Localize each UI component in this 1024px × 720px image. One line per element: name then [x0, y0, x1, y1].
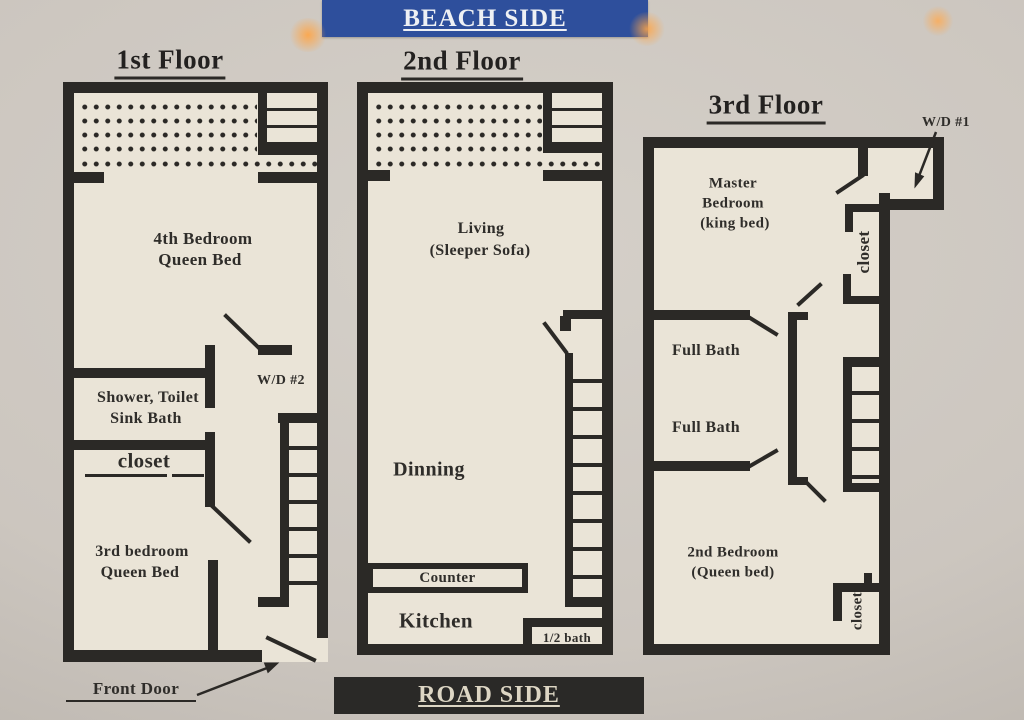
label-full-bath-upper: Full Bath — [672, 342, 740, 360]
wall — [843, 274, 851, 304]
wall — [357, 170, 390, 181]
wall — [63, 650, 262, 662]
wall — [643, 137, 944, 148]
label-half-bath: 1/2 bath — [543, 630, 591, 646]
wall — [560, 316, 571, 331]
beach-side-label: BEACH SIDE — [403, 5, 567, 33]
beach-side-banner: BEACH SIDE — [322, 0, 648, 37]
label-bath-line1: Shower, Toilet — [97, 389, 199, 407]
label-bedroom2-line2: (Queen bed) — [691, 565, 774, 582]
road-side-banner: ROAD SIDE — [334, 677, 644, 714]
deck-dots — [370, 153, 602, 168]
deck-dots — [76, 96, 257, 153]
wall — [788, 477, 808, 485]
label-master-line2: Bedroom — [702, 196, 764, 213]
floor-1-title: 1st Floor — [114, 45, 225, 80]
wall — [63, 368, 214, 378]
front-door-underline — [66, 700, 196, 702]
wall — [280, 423, 289, 605]
floor-plan-photo: BEACH SIDE ROAD SIDE 1st Floor 2nd Floor… — [0, 0, 1024, 720]
wall — [258, 172, 328, 183]
wall — [543, 170, 613, 181]
wall — [317, 82, 328, 638]
wall — [63, 172, 104, 183]
floor-2-title: 2nd Floor — [401, 46, 523, 81]
label-bedroom3-line1: 3rd bedroom — [95, 543, 188, 561]
label-bedroom3-line2: Queen Bed — [101, 564, 180, 582]
label-living-line1: Living — [458, 220, 505, 238]
floor-3-title: 3rd Floor — [707, 90, 826, 125]
kitchen-counter: Counter — [367, 563, 528, 593]
wall — [85, 474, 167, 477]
label-bedroom4-line1: 4th Bedroom — [153, 229, 252, 249]
label-washer-dryer-1: W/D #1 — [922, 115, 970, 131]
label-front-door: Front Door — [93, 679, 179, 699]
wall — [258, 82, 267, 154]
front-door-arrow — [197, 668, 267, 695]
label-counter: Counter — [419, 570, 475, 587]
staircase-f1-main — [289, 423, 317, 597]
wall — [357, 82, 613, 93]
wall — [258, 145, 328, 155]
wall — [278, 413, 328, 423]
staircase-f2-top — [552, 94, 602, 143]
deck-dots — [76, 153, 320, 168]
wall — [258, 597, 289, 607]
label-kitchen: Kitchen — [399, 609, 473, 634]
wall — [843, 483, 890, 492]
wall — [845, 204, 853, 232]
wall — [63, 82, 328, 93]
wall — [258, 345, 292, 355]
label-bath-line2: Sink Bath — [110, 410, 182, 428]
deck-dots — [370, 96, 542, 153]
wall — [643, 137, 654, 652]
front-door-arrowhead — [265, 663, 279, 673]
road-side-label: ROAD SIDE — [418, 682, 560, 709]
label-bedroom4-line2: Queen Bed — [158, 250, 241, 270]
wall — [543, 143, 613, 153]
wall — [864, 573, 872, 585]
wall — [843, 357, 852, 492]
wall — [879, 193, 890, 652]
label-closet-lower: closet — [850, 592, 867, 630]
wall — [643, 461, 750, 471]
label-bedroom2-line1: 2nd Bedroom — [687, 545, 778, 562]
label-closet-f1: closet — [118, 449, 171, 474]
lens-flare — [922, 6, 954, 36]
staircase-f2-main — [573, 355, 602, 597]
label-washer-dryer-2: W/D #2 — [257, 373, 305, 389]
label-dining: Dinning — [393, 459, 465, 482]
wall — [172, 474, 204, 477]
wall — [565, 353, 573, 605]
staircase-f3 — [852, 367, 879, 483]
staircase-f1-top — [267, 94, 317, 145]
wall — [565, 597, 602, 607]
label-master-line1: Master — [709, 176, 757, 193]
wall — [890, 199, 944, 210]
label-closet-upper: closet — [854, 231, 874, 274]
wall — [523, 618, 532, 655]
label-master-line3: (king bed) — [700, 216, 769, 233]
wall — [523, 618, 602, 627]
wall — [602, 82, 613, 655]
wall — [788, 312, 797, 485]
label-living-line2: (Sleeper Sofa) — [430, 242, 531, 260]
wall — [208, 560, 218, 652]
wall — [833, 583, 842, 621]
wall — [643, 310, 750, 320]
wall — [858, 148, 868, 176]
wall — [643, 644, 890, 655]
label-full-bath-lower: Full Bath — [672, 419, 740, 437]
wall — [205, 345, 215, 408]
